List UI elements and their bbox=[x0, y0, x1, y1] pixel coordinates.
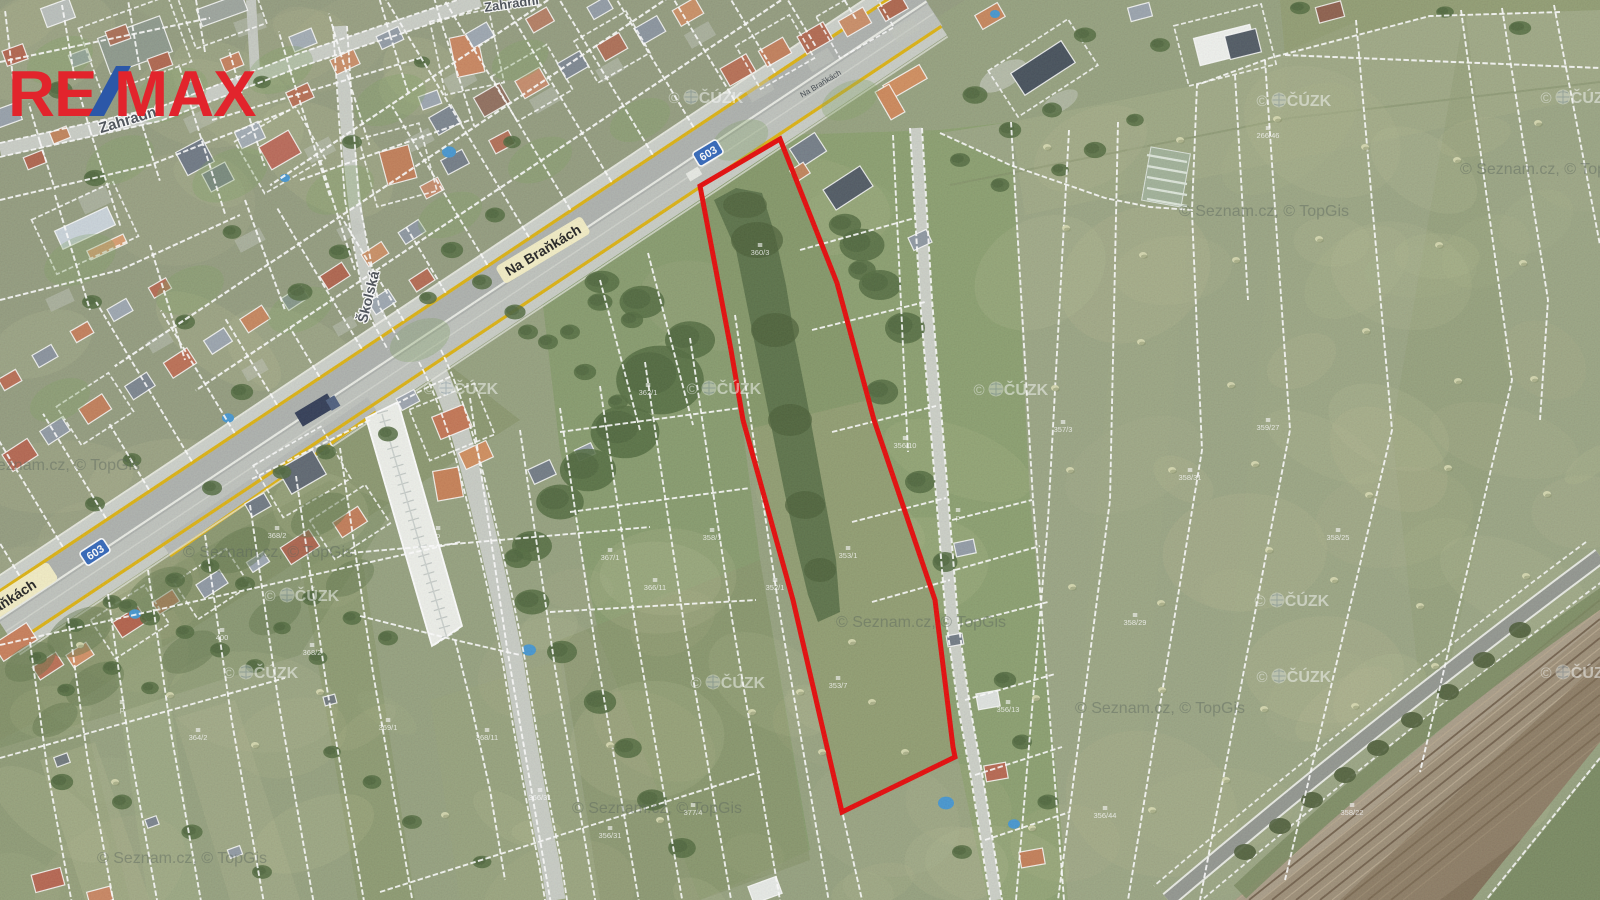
svg-text:©: © bbox=[1254, 593, 1265, 610]
svg-text:MAX: MAX bbox=[114, 57, 256, 130]
svg-text:ČÚZK: ČÚZK bbox=[1571, 88, 1600, 107]
svg-text:ČÚZK: ČÚZK bbox=[1287, 667, 1332, 686]
svg-text:ČÚZK: ČÚZK bbox=[1287, 91, 1332, 110]
svg-text:ČÚZK: ČÚZK bbox=[1571, 663, 1600, 682]
svg-text:©: © bbox=[1256, 93, 1267, 110]
svg-text:© Seznam.cz, © TopGis: © Seznam.cz, © TopGis bbox=[1460, 161, 1600, 178]
svg-text:©: © bbox=[668, 90, 679, 107]
svg-text:©: © bbox=[423, 381, 434, 398]
svg-text:ČÚZK: ČÚZK bbox=[454, 379, 499, 398]
svg-text:©: © bbox=[223, 665, 234, 682]
svg-text:©: © bbox=[264, 588, 275, 605]
svg-text:© Seznam.cz, © TopGis: © Seznam.cz, © TopGis bbox=[0, 457, 140, 474]
svg-text:ČÚZK: ČÚZK bbox=[295, 586, 340, 605]
svg-text:©: © bbox=[973, 382, 984, 399]
svg-text:ČÚZK: ČÚZK bbox=[699, 88, 744, 107]
svg-text:ČÚZK: ČÚZK bbox=[721, 673, 766, 692]
svg-text:ČÚZK: ČÚZK bbox=[717, 379, 762, 398]
svg-text:ČÚZK: ČÚZK bbox=[1285, 591, 1330, 610]
svg-text:© Seznam.cz, © TopGis: © Seznam.cz, © TopGis bbox=[97, 850, 267, 867]
svg-text:© Seznam.cz, © TopGis: © Seznam.cz, © TopGis bbox=[1179, 203, 1349, 220]
svg-text:© Seznam.cz, © TopGis: © Seznam.cz, © TopGis bbox=[183, 544, 353, 561]
svg-text:© Seznam.cz, © TopGis: © Seznam.cz, © TopGis bbox=[1075, 700, 1245, 717]
svg-text:RE: RE bbox=[8, 57, 96, 130]
svg-text:©: © bbox=[1256, 669, 1267, 686]
svg-text:© Seznam.cz, © TopGis: © Seznam.cz, © TopGis bbox=[836, 614, 1006, 631]
svg-text:©: © bbox=[690, 675, 701, 692]
svg-text:© Seznam.cz, © TopGis: © Seznam.cz, © TopGis bbox=[572, 800, 742, 817]
svg-text:©: © bbox=[686, 381, 697, 398]
svg-text:©: © bbox=[1540, 90, 1551, 107]
svg-text:ČÚZK: ČÚZK bbox=[1004, 380, 1049, 399]
svg-text:©: © bbox=[1540, 665, 1551, 682]
svg-text:ČÚZK: ČÚZK bbox=[254, 663, 299, 682]
